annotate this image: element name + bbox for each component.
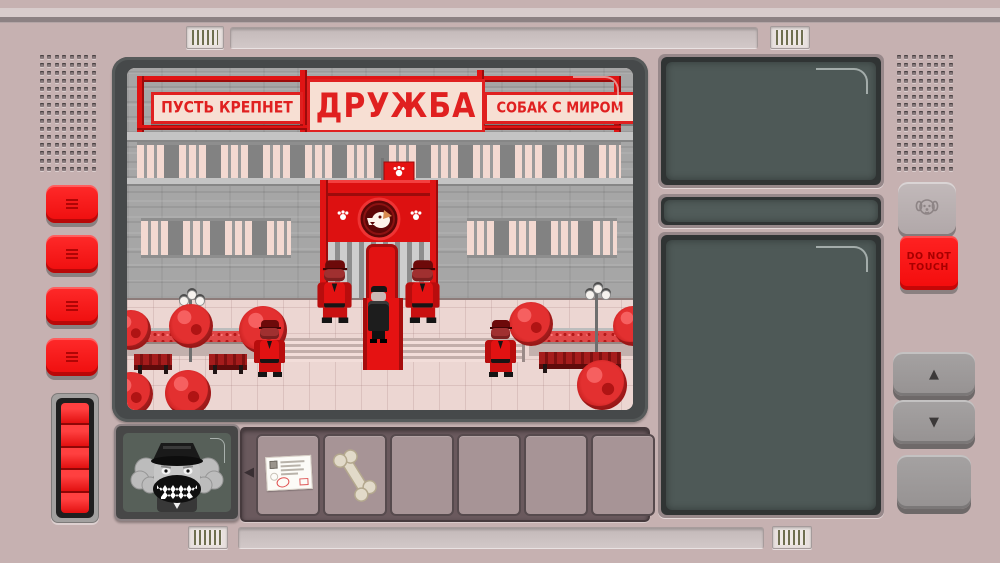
ticker-display [658,194,884,228]
top-seam-dark [0,17,1000,23]
left-arrow-icon: ◀ [244,465,254,480]
scroll-up-button[interactable]: ▲ [893,352,975,396]
do-not-touch-line2: TOUCH [909,263,949,274]
red-tree [169,304,213,348]
building-facade: ПУСТЬ КРЕПНЕТ ДРУЖБА СОБАК С МИРОМ [127,68,633,298]
guard [485,320,516,377]
status-indicator-slider[interactable] [51,393,99,523]
guard [254,320,285,377]
guard [405,260,439,323]
main-screen[interactable]: ПУСТЬ КРЕПНЕТ ДРУЖБА СОБАК С МИРОМ [127,68,633,410]
bench [134,354,172,370]
speaker-grille-left [40,55,96,171]
speaker-grille-right [897,55,953,171]
inventory-prev-button[interactable]: ◀ [243,459,255,485]
inventory-slot-5[interactable] [524,434,588,516]
blank-button[interactable] [897,455,971,509]
top-vent-left [186,26,224,49]
bone-item[interactable] [327,438,383,512]
vent-slats [194,530,222,545]
street-lamp-right [585,284,609,360]
do-not-touch-button[interactable]: DO NOT TOUCH [900,236,958,290]
menu-bars-icon [66,199,78,209]
inventory-slot-2[interactable] [323,434,387,516]
inventory-slot-3[interactable] [390,434,454,516]
menu-bars-icon [66,352,78,362]
console-device: ПУСТЬ КРЕПНЕТ ДРУЖБА СОБАК С МИРОМ [0,0,1000,563]
menu-bars-icon [66,249,78,259]
red-tree [577,360,627,410]
portrait-panel [114,424,240,521]
panel-button-4[interactable] [46,338,98,376]
menu-bars-icon [66,301,78,311]
inventory-slot-1[interactable] [256,434,320,516]
vent-slats [778,530,806,545]
inventory-tray: ◀ ▶ [240,427,650,522]
dog-face-icon [913,196,941,220]
top-vent-right [770,26,810,49]
slider-segments [61,403,89,513]
bottom-slot [238,527,764,549]
dog-button[interactable] [898,182,956,234]
portrait-screen [123,433,231,512]
banner-center: ДРУЖБА [307,79,485,133]
emblem-icon [357,197,401,241]
window-row-right-wing [467,218,617,258]
panel-button-3[interactable] [46,287,98,325]
banner-center-text: ДРУЖБА [316,86,477,125]
banner-left-text: ПУСТЬ КРЕПНЕТ [161,99,293,117]
down-arrow-icon: ▼ [929,415,939,430]
bottom-vent-left [188,526,228,549]
banner-left: ПУСТЬ КРЕПНЕТ [151,92,303,124]
up-arrow-icon: ▲ [929,367,939,382]
inventory-slots [256,434,655,516]
panel-button-2[interactable] [46,235,98,273]
main-screen-bezel: ПУСТЬ КРЕПНЕТ ДРУЖБА СОБАК С МИРОМ [112,57,648,422]
id-card-item[interactable] [265,455,313,491]
document-display [658,232,884,518]
top-display [658,54,884,188]
inventory-slot-6[interactable] [591,434,655,516]
window-row-left-wing [141,218,291,258]
paw-print-icon [336,208,350,222]
portico-entablature [320,180,438,196]
red-tree [165,370,211,410]
guard [317,260,351,323]
vent-slats [192,30,218,45]
top-slot [230,27,758,49]
vent-slats [776,30,804,45]
top-seam-light [0,8,1000,17]
bench [209,354,247,370]
bottom-vent-right [772,526,812,549]
inventory-slot-4[interactable] [457,434,521,516]
panel-button-1[interactable] [46,185,98,223]
screen-gloss [573,76,619,108]
paw-print-icon [409,208,423,222]
visitor [368,286,389,343]
scroll-down-button[interactable]: ▼ [893,400,975,444]
